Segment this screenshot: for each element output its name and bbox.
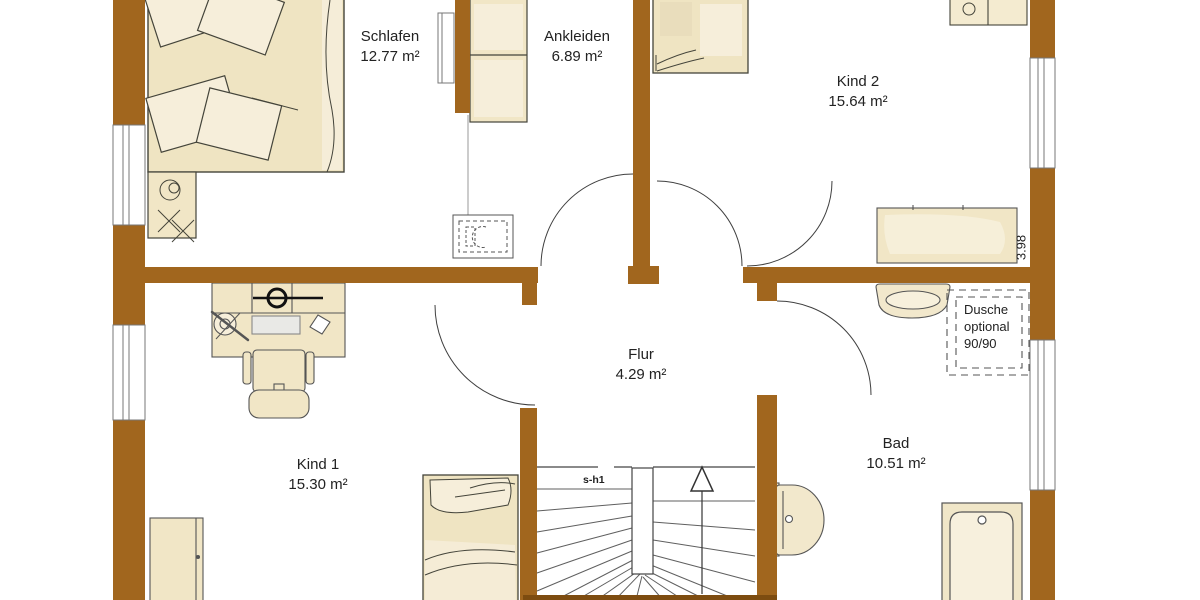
room-area: 6.89 m² bbox=[544, 47, 610, 67]
floor-plan-drawing bbox=[0, 0, 1200, 600]
room-name: Kind 1 bbox=[288, 455, 347, 475]
window bbox=[1030, 340, 1055, 490]
window bbox=[1030, 58, 1055, 168]
door-arc-kind1 bbox=[435, 305, 535, 405]
door-arc-kind2-b bbox=[747, 181, 832, 266]
wall-bad bbox=[757, 283, 777, 301]
exterior-wall-left bbox=[113, 420, 145, 600]
wall-mid-left bbox=[522, 283, 537, 305]
room-label-bad: Bad 10.51 m² bbox=[866, 434, 925, 474]
wall-mid-right bbox=[743, 267, 1030, 283]
room-area: 4.29 m² bbox=[616, 365, 667, 385]
dimension-label: 3.98 bbox=[1014, 231, 1029, 265]
note-line: optional bbox=[964, 318, 1010, 335]
staircase bbox=[537, 467, 755, 600]
exterior-wall-left bbox=[113, 225, 145, 325]
room-name: Schlafen bbox=[360, 27, 419, 47]
stair-label: s-h1 bbox=[583, 474, 605, 486]
shower-optional-note: Dusche optional 90/90 bbox=[964, 301, 1010, 352]
window bbox=[113, 125, 145, 225]
stair-spine bbox=[632, 468, 653, 574]
bathtub bbox=[942, 503, 1022, 600]
exterior-wall-right bbox=[1030, 0, 1055, 58]
room-label-ankleiden: Ankleiden 6.89 m² bbox=[544, 27, 610, 67]
room-name: Bad bbox=[866, 434, 925, 454]
dresser bbox=[438, 13, 454, 83]
bed-kind2 bbox=[653, 0, 748, 73]
door-arc-kind2-a bbox=[657, 181, 742, 266]
room-area: 12.77 m² bbox=[360, 47, 419, 67]
wall-ankleiden-kind2 bbox=[628, 266, 659, 284]
exterior-wall-right bbox=[1030, 168, 1055, 340]
toilet bbox=[772, 483, 824, 556]
exterior-wall-right bbox=[1030, 490, 1055, 600]
room-area: 15.64 m² bbox=[828, 92, 887, 112]
double-bed bbox=[143, 0, 344, 172]
bed-kind1 bbox=[423, 475, 518, 600]
desk-kind1 bbox=[212, 283, 345, 357]
wall-schlafen-ankleiden bbox=[455, 0, 470, 113]
room-label-schlafen: Schlafen 12.77 m² bbox=[360, 27, 419, 67]
door-arc-bad bbox=[777, 301, 871, 395]
room-label-kind1: Kind 1 15.30 m² bbox=[288, 455, 347, 495]
room-name: Kind 2 bbox=[828, 72, 887, 92]
wall-bottom-edge bbox=[523, 595, 777, 600]
desk-kind2 bbox=[877, 205, 1017, 263]
nightstand bbox=[148, 172, 196, 242]
wall-mid-left bbox=[145, 267, 538, 283]
door-arc-ankleiden bbox=[541, 174, 633, 266]
wall-ankleiden-kind2 bbox=[633, 0, 650, 266]
wall-bad bbox=[757, 395, 777, 600]
note-line: Dusche bbox=[964, 301, 1010, 318]
room-name: Flur bbox=[616, 345, 667, 365]
chair bbox=[243, 350, 314, 418]
room-name: Ankleiden bbox=[544, 27, 610, 47]
nightstand-kind2 bbox=[950, 0, 1027, 25]
room-area: 10.51 m² bbox=[866, 454, 925, 474]
wall-stair-left bbox=[520, 408, 537, 600]
exterior-wall-left bbox=[113, 0, 145, 125]
room-label-kind2: Kind 2 15.64 m² bbox=[828, 72, 887, 112]
window bbox=[113, 325, 145, 420]
wardrobe bbox=[468, 0, 527, 216]
sink bbox=[876, 284, 950, 318]
washer-symbol bbox=[453, 215, 513, 258]
wardrobe-kind1 bbox=[150, 518, 203, 600]
floor-plan: Schlafen 12.77 m² Ankleiden 6.89 m² Kind… bbox=[0, 0, 1200, 600]
room-area: 15.30 m² bbox=[288, 475, 347, 495]
note-line: 90/90 bbox=[964, 335, 1010, 352]
room-label-flur: Flur 4.29 m² bbox=[616, 345, 667, 385]
